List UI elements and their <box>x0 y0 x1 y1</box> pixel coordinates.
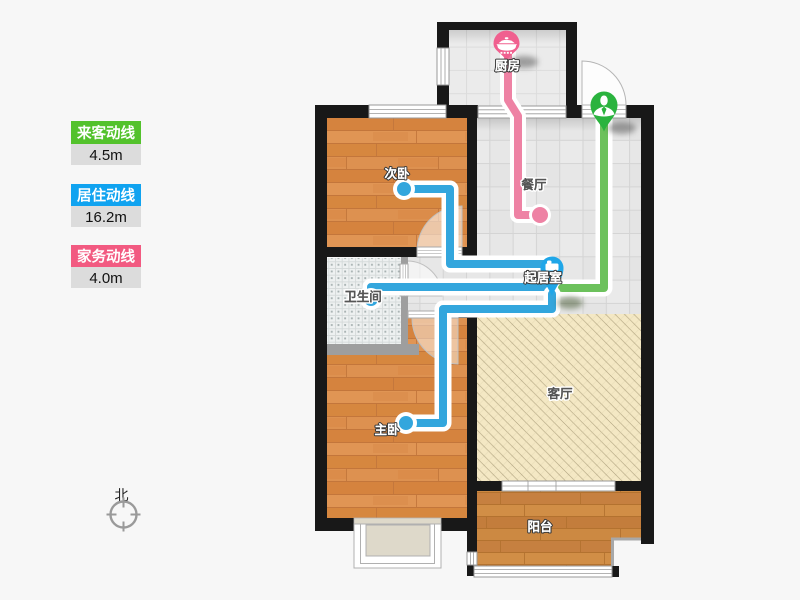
svg-text:4.0m: 4.0m <box>89 270 122 287</box>
svg-text:阳台: 阳台 <box>527 519 552 534</box>
svg-text:居住动线: 居住动线 <box>77 187 135 205</box>
svg-text:家务动线: 家务动线 <box>77 248 135 266</box>
svg-text:卫生间: 卫生间 <box>344 289 382 304</box>
svg-text:次卧: 次卧 <box>384 166 410 181</box>
svg-text:16.2m: 16.2m <box>85 209 127 226</box>
svg-text:4.5m: 4.5m <box>89 147 122 164</box>
svg-text:起居室: 起居室 <box>523 270 562 285</box>
svg-text:厨房: 厨房 <box>495 58 520 73</box>
svg-text:主卧: 主卧 <box>374 422 400 437</box>
svg-text:来客动线: 来客动线 <box>76 124 135 142</box>
svg-text:餐厅: 餐厅 <box>520 177 547 192</box>
svg-text:客厅: 客厅 <box>546 386 573 401</box>
